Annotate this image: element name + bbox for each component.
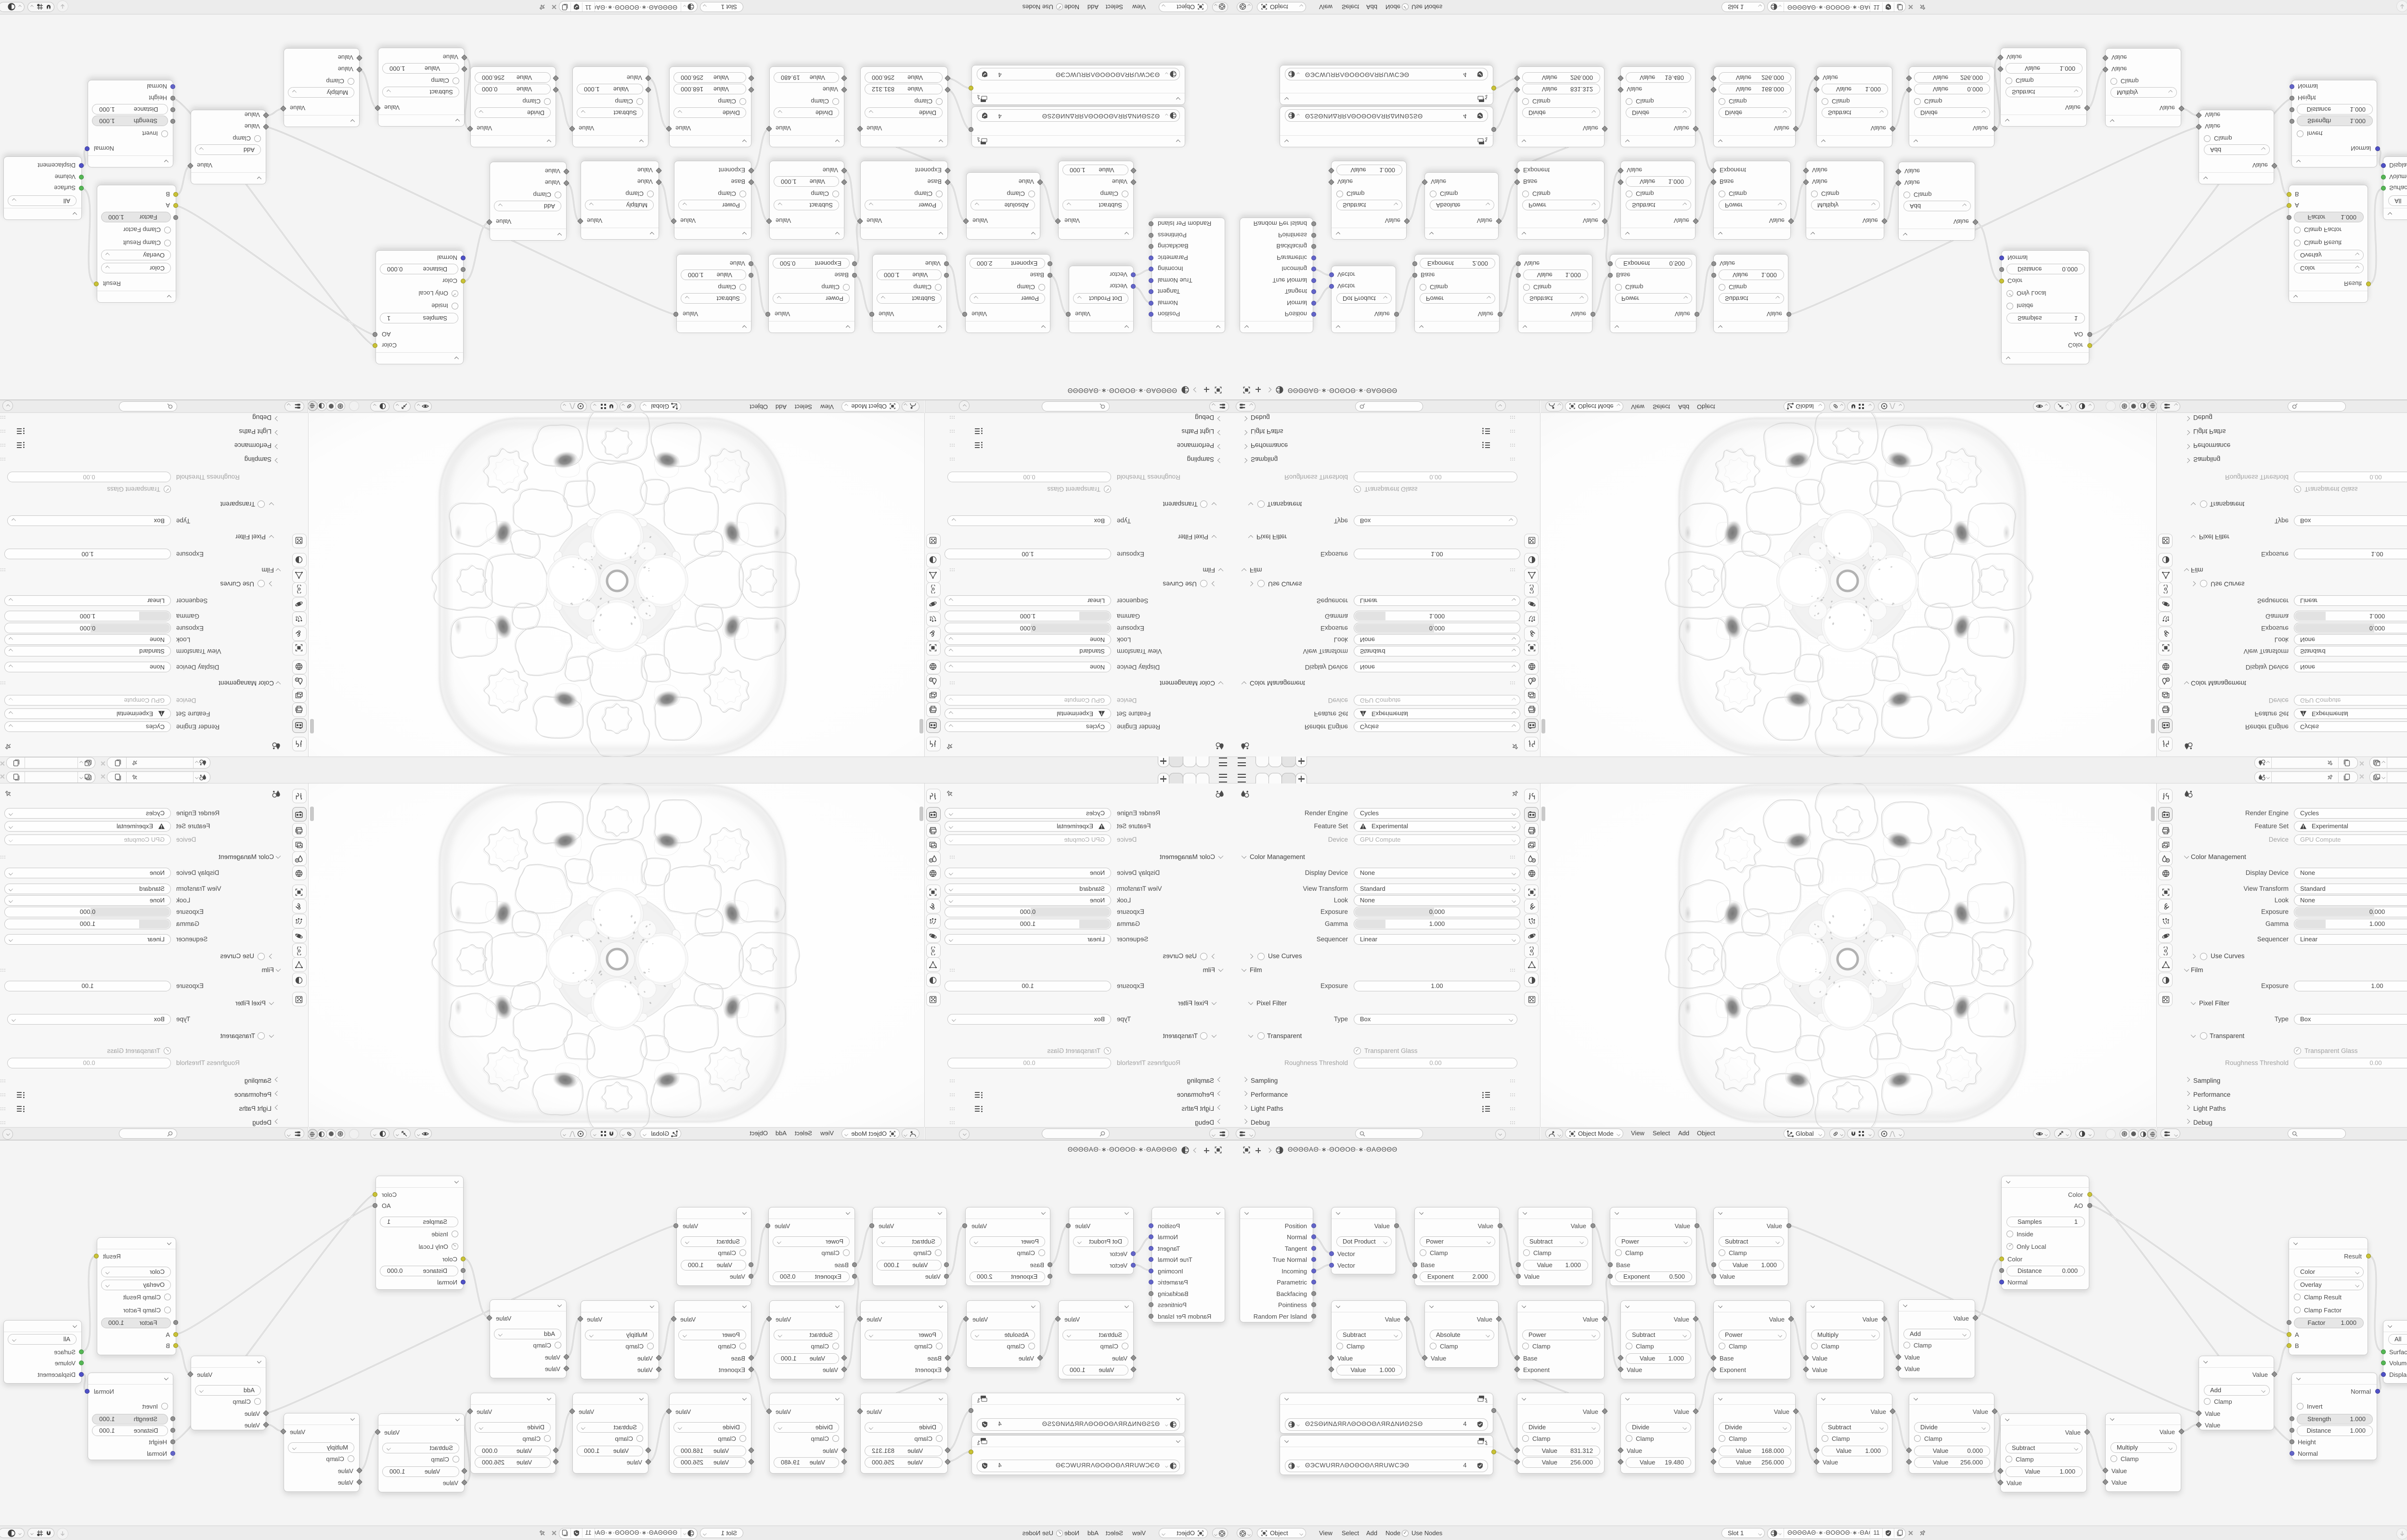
- svg-text:4: 4: [977, 137, 980, 141]
- svg-text:4: 4: [1485, 137, 1488, 141]
- svg-text:4: 4: [977, 1399, 980, 1403]
- svg-text:4: 4: [1485, 94, 1488, 99]
- svg-text:4: 4: [977, 1441, 980, 1446]
- svg-text:4: 4: [977, 94, 980, 99]
- svg-text:4: 4: [1485, 1441, 1488, 1446]
- svg-text:4: 4: [1485, 1399, 1488, 1403]
